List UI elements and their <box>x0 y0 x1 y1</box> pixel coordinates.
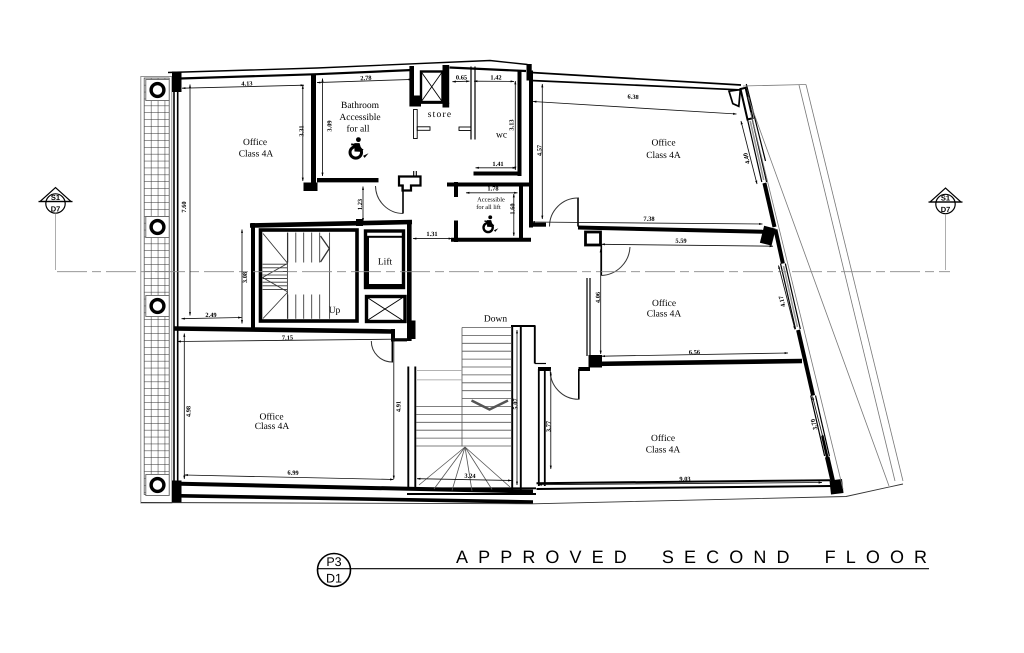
svg-text:7.60: 7.60 <box>181 201 188 212</box>
svg-text:Office: Office <box>259 413 283 423</box>
svg-text:3.08: 3.08 <box>242 272 249 283</box>
svg-text:S1: S1 <box>51 193 60 202</box>
svg-text:Down: Down <box>484 315 507 325</box>
svg-text:6.38: 6.38 <box>627 93 639 101</box>
svg-text:1.60: 1.60 <box>509 203 516 214</box>
svg-text:3.24: 3.24 <box>464 473 476 480</box>
svg-text:Lift: Lift <box>378 258 393 268</box>
svg-text:1.41: 1.41 <box>492 161 503 168</box>
svg-text:D7: D7 <box>941 205 951 214</box>
svg-text:1.42: 1.42 <box>490 74 501 81</box>
svg-text:P3: P3 <box>326 555 341 569</box>
svg-text:D7: D7 <box>51 205 61 214</box>
svg-text:store: store <box>428 110 452 120</box>
svg-text:Class 4A: Class 4A <box>646 151 681 161</box>
svg-text:7.15: 7.15 <box>282 335 293 342</box>
svg-text:1.31: 1.31 <box>426 231 437 238</box>
svg-text:wc: wc <box>496 131 507 141</box>
svg-text:D1: D1 <box>326 572 342 586</box>
svg-text:Office: Office <box>651 434 675 444</box>
svg-text:0.65: 0.65 <box>456 75 467 82</box>
svg-text:Up: Up <box>329 306 341 316</box>
svg-text:3.13: 3.13 <box>509 119 516 130</box>
svg-text:4.98: 4.98 <box>186 406 193 417</box>
svg-text:4.91: 4.91 <box>395 401 402 412</box>
svg-text:1.78: 1.78 <box>487 186 498 193</box>
svg-text:4.13: 4.13 <box>241 80 252 87</box>
svg-text:3.09: 3.09 <box>327 120 334 131</box>
svg-text:Class 4A: Class 4A <box>646 446 681 456</box>
svg-text:Office: Office <box>651 139 675 149</box>
svg-text:6.99: 6.99 <box>287 470 298 477</box>
svg-text:APPROVED SECOND FLOOR: APPROVED SECOND FLOOR <box>456 547 937 567</box>
svg-text:Bathroom: Bathroom <box>341 101 380 111</box>
svg-text:2.78: 2.78 <box>360 75 371 82</box>
svg-text:Office: Office <box>652 299 676 309</box>
svg-text:Accessible: Accessible <box>339 113 380 123</box>
svg-text:S1: S1 <box>941 194 950 203</box>
svg-text:Class 4A: Class 4A <box>239 150 274 160</box>
svg-text:Office: Office <box>243 138 267 148</box>
svg-text:Accessible: Accessible <box>477 197 505 204</box>
svg-text:5.07: 5.07 <box>513 398 520 410</box>
svg-text:3.77: 3.77 <box>545 420 552 432</box>
svg-text:for all lift: for all lift <box>476 204 501 211</box>
svg-text:2.49: 2.49 <box>205 312 216 319</box>
svg-text:7.38: 7.38 <box>643 216 654 223</box>
svg-text:Class 4A: Class 4A <box>647 310 682 320</box>
svg-text:3.31: 3.31 <box>299 125 306 136</box>
svg-text:1.23: 1.23 <box>357 199 364 210</box>
svg-text:6.56: 6.56 <box>689 349 701 356</box>
svg-text:5.59: 5.59 <box>675 238 686 245</box>
svg-text:9.03: 9.03 <box>679 476 690 483</box>
svg-text:Class 4A: Class 4A <box>255 422 290 432</box>
svg-text:4.06: 4.06 <box>595 291 602 303</box>
svg-text:for all: for all <box>347 125 370 135</box>
svg-text:4.57: 4.57 <box>537 144 544 156</box>
